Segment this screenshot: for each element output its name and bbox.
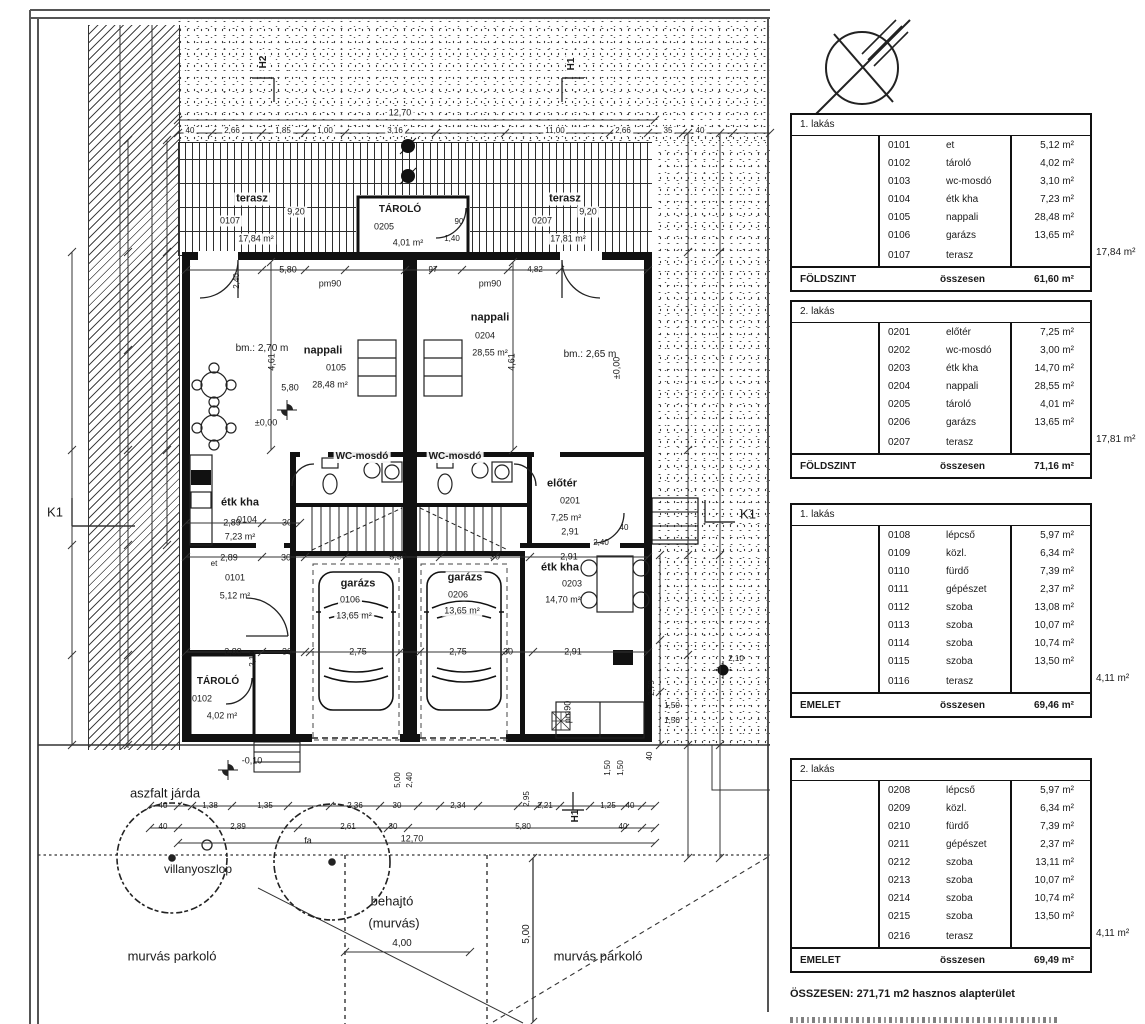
room-name: szoba (946, 656, 1012, 667)
table-row: 0204nappali28,55 m² (792, 377, 1090, 395)
plan-label: 17,81 m² (548, 234, 588, 245)
room-code: 0212 (888, 857, 946, 868)
schedule-rows: 0201előtér7,25 m²0202wc-mosdó3,00 m²0203… (792, 323, 1090, 453)
table-row: 0210fürdő7,39 m² (792, 817, 1090, 835)
plan-label: 2,75 (449, 648, 467, 657)
plan-label: 30 (503, 648, 513, 657)
room-code: 0214 (888, 893, 946, 904)
storage-rooms (190, 197, 698, 772)
room-area: 7,39 m² (1012, 821, 1090, 832)
osszesen-label: összesen (940, 274, 1026, 285)
plan-label: -0,10 (242, 757, 263, 766)
plan-label: fa (304, 837, 312, 846)
north-arrow-icon (816, 20, 910, 114)
room-name: közl. (946, 548, 1012, 559)
table-row: 0103wc-mosdó3,10 m² (792, 172, 1090, 190)
plan-label: 2,89 (223, 519, 241, 528)
schedule-rows: 0208lépcső5,97 m²0209közl.6,34 m²0210für… (792, 781, 1090, 947)
plan-label: bm.: 2,70 m (236, 344, 289, 354)
plan-label: étk kha (541, 563, 579, 574)
plan-label: 3,16 (385, 126, 405, 136)
room-area: 3,10 m² (1012, 176, 1090, 187)
plan-label: terasz (547, 193, 583, 206)
room-name: étk kha (946, 363, 1012, 374)
plan-label: nappali (471, 313, 510, 324)
schedule-table-földszint-2: 2. lakás0201előtér7,25 m²0202wc-mosdó3,0… (790, 300, 1092, 479)
plan-label: étk kha (221, 498, 259, 509)
room-name: nappali (946, 381, 1012, 392)
table-row: 0113szoba10,07 m² (792, 616, 1090, 634)
plan-label: H2 (258, 54, 270, 71)
plan-label: 2,36 (347, 802, 363, 810)
plan-label: 30 (281, 554, 291, 563)
plan-label: 2,91 (561, 528, 579, 537)
osszesen-label: összesen (940, 955, 1026, 966)
plan-label: 1,00 (315, 126, 335, 136)
room-area: 13,11 m² (1012, 857, 1090, 868)
table-row: 0208lépcső5,97 m² (792, 781, 1090, 799)
plan-label: 28,48 m² (312, 381, 348, 390)
plan-label: 9,20 (285, 207, 307, 218)
apartment-label: 2. lakás (792, 760, 1090, 781)
plan-label: 0207 (530, 216, 554, 227)
table-row: 0201előtér7,25 m² (792, 323, 1090, 341)
plan-label: 12,70 (401, 835, 424, 844)
room-name: garázs (946, 417, 1012, 428)
table-row: 0215szoba13,50 m² (792, 907, 1090, 925)
total-row: EMELETösszesen69,49 m² (792, 947, 1090, 971)
room-area: 10,07 m² (1012, 875, 1090, 886)
plan-label: 30 (393, 802, 402, 810)
room-name: terasz (946, 437, 1012, 448)
schedule-table-emelet-2: 2. lakás0208lépcső5,97 m²0209közl.6,34 m… (790, 758, 1092, 973)
terrace-area-outside: 17,81 m² (1096, 434, 1135, 445)
plan-label: 40 (184, 126, 197, 136)
room-code: 0201 (888, 327, 946, 338)
room-name: garázs (946, 230, 1012, 241)
room-code: 0203 (888, 363, 946, 374)
room-code: 0103 (888, 176, 946, 187)
room-code: 0115 (888, 656, 946, 667)
plan-label: 4,61 (268, 353, 277, 371)
table-row: 0213szoba10,07 m² (792, 871, 1090, 889)
level-label: FÖLDSZINT (792, 461, 940, 472)
level-label: EMELET (792, 700, 940, 711)
room-name: tároló (946, 158, 1012, 169)
plan-label: 40 (619, 823, 628, 831)
plan-label: 40 (159, 823, 168, 831)
room-code: 0101 (888, 140, 946, 151)
room-code: 0206 (888, 417, 946, 428)
plan-label: garázs (339, 578, 378, 591)
plan-label: előtér (547, 479, 577, 490)
plan-label: 40 (626, 802, 635, 810)
table-row: 0211gépészet2,37 m² (792, 835, 1090, 853)
total-area: 69,46 m² (1026, 700, 1090, 711)
plan-label: 28,55 m² (472, 349, 508, 358)
room-name: előtér (946, 327, 1012, 338)
plan-label: 4,01 m² (393, 239, 424, 248)
room-area: 7,25 m² (1012, 327, 1090, 338)
room-name: wc-mosdó (946, 176, 1012, 187)
total-area: 61,60 m² (1026, 274, 1090, 285)
room-code: 0208 (888, 785, 946, 796)
plan-label: pm90 (319, 280, 342, 289)
plan-label: 4,00 (392, 939, 411, 949)
plan-label: behajtó (371, 895, 414, 908)
plan-label: 2,89 (224, 648, 242, 657)
plan-label: ±0,00 (255, 419, 277, 428)
plan-label: 2,40 (593, 539, 609, 547)
table-row: 0112szoba13,08 m² (792, 598, 1090, 616)
table-row: 0116terasz (792, 670, 1090, 692)
apartment-label: 2. lakás (792, 302, 1090, 323)
plan-label: H1 (571, 810, 581, 823)
plan-label: 14,70 m² (545, 596, 581, 605)
room-area: 5,97 m² (1012, 530, 1090, 541)
utility-pole-symbol (202, 840, 212, 850)
table-row: 0101et5,12 m² (792, 136, 1090, 154)
table-row: 0205tároló4,01 m² (792, 395, 1090, 413)
total-row: FÖLDSZINTösszesen71,16 m² (792, 453, 1090, 477)
plan-label: 2,40 (233, 273, 241, 289)
total-area-summary: ÖSSZESEN: 271,71 m2 hasznos alapterület (790, 988, 1015, 1000)
room-name: fürdő (946, 821, 1012, 832)
plan-label: 12,70 (387, 108, 414, 119)
plan-label: 97 (429, 266, 438, 274)
plan-label: 9,20 (577, 207, 599, 218)
room-code: 0113 (888, 620, 946, 631)
room-name: szoba (946, 620, 1012, 631)
plan-label: 13,65 m² (334, 611, 374, 622)
plan-label: 5,80 (515, 823, 531, 831)
plan-label: pm90 (479, 280, 502, 289)
table-row: 0114szoba10,74 m² (792, 634, 1090, 652)
level-label: EMELET (792, 955, 940, 966)
plan-label: 2,40 (406, 772, 414, 788)
plan-label: 0201 (560, 497, 580, 506)
room-area: 4,02 m² (1012, 158, 1090, 169)
table-row: 0216terasz (792, 925, 1090, 947)
plan-label: 0205 (374, 223, 394, 232)
terrace-area-outside: 4,11 m² (1096, 928, 1129, 939)
table-row: 0107terasz (792, 244, 1090, 266)
total-area: 71,16 m² (1026, 461, 1090, 472)
room-area: 13,65 m² (1012, 230, 1090, 241)
plan-label: WC-mosdó (427, 451, 484, 463)
plan-label: 1,38 (202, 802, 218, 810)
room-area: 13,50 m² (1012, 911, 1090, 922)
room-name: wc-mosdó (946, 345, 1012, 356)
tree-canopies (117, 803, 390, 920)
plan-label: 30 (282, 648, 292, 657)
plan-label: H1 (566, 56, 578, 73)
room-code: 0102 (888, 158, 946, 169)
table-row: 0209közl.6,34 m² (792, 799, 1090, 817)
plan-label: 0203 (562, 580, 582, 589)
schedule-table-emelet-1: 1. lakás0108lépcső5,97 m²0109közl.6,34 m… (790, 503, 1092, 718)
plan-label: 2,79 (648, 680, 656, 696)
room-name: lépcső (946, 530, 1012, 541)
table-row: 0108lépcső5,97 m² (792, 526, 1090, 544)
room-area: 2,37 m² (1012, 839, 1090, 850)
plan-label: murvás parkoló (554, 950, 643, 963)
room-area: 28,48 m² (1012, 212, 1090, 223)
plan-label: 2,66 (222, 126, 242, 136)
level-label: FÖLDSZINT (792, 274, 940, 285)
room-name: et (946, 140, 1012, 151)
plan-label: villanyoszlop (164, 863, 232, 875)
plan-label: 2,75 (349, 648, 367, 657)
room-name: gépészet (946, 839, 1012, 850)
terrace-area-outside: 17,84 m² (1096, 247, 1135, 258)
schedule-table-földszint-1: 1. lakás0101et5,12 m²0102tároló4,02 m²01… (790, 113, 1092, 292)
plan-label: 1,35 (257, 802, 273, 810)
room-area: 4,01 m² (1012, 399, 1090, 410)
schedule-rows: 0108lépcső5,97 m²0109közl.6,34 m²0110für… (792, 526, 1090, 692)
room-area: 3,00 m² (1012, 345, 1090, 356)
plan-label: 0105 (326, 364, 346, 373)
plan-label: 0204 (475, 332, 495, 341)
room-area: 10,74 m² (1012, 893, 1090, 904)
room-code: 0204 (888, 381, 946, 392)
room-code: 0106 (888, 230, 946, 241)
plan-label: bm.: 2,65 m (564, 350, 617, 360)
plan-label: 35 (662, 126, 675, 136)
column-divider (878, 526, 880, 692)
room-code: 0216 (888, 931, 946, 942)
plan-label: 0107 (218, 216, 242, 227)
room-name: szoba (946, 911, 1012, 922)
plan-label: 1,50 (664, 702, 680, 710)
room-code: 0104 (888, 194, 946, 205)
room-area: 6,34 m² (1012, 803, 1090, 814)
apartment-label: 1. lakás (792, 115, 1090, 136)
table-row: 0214szoba10,74 m² (792, 889, 1090, 907)
column-divider (1010, 323, 1012, 453)
plan-label: 1,50 (617, 760, 625, 776)
room-area: 5,97 m² (1012, 785, 1090, 796)
table-row: 0203étk kha14,70 m² (792, 359, 1090, 377)
room-name: szoba (946, 857, 1012, 868)
plan-label: 4,61 (508, 353, 517, 371)
room-name: étk kha (946, 194, 1012, 205)
plan-label: 5,50 (389, 553, 407, 562)
plan-label: K1 (47, 506, 63, 519)
plan-label: 2,66 (613, 126, 633, 136)
room-area: 7,23 m² (1012, 194, 1090, 205)
room-name: közl. (946, 803, 1012, 814)
room-code: 0205 (888, 399, 946, 410)
total-row: EMELETösszesen69,46 m² (792, 692, 1090, 716)
plan-label: 7,23 m² (225, 533, 256, 542)
room-area: 13,08 m² (1012, 602, 1090, 613)
floor-plan-sheet: terasz01079,2017,84 m²terasz02079,2017,8… (0, 0, 1145, 1024)
room-name: terasz (946, 676, 1012, 687)
column-divider (1010, 781, 1012, 947)
room-code: 0211 (888, 839, 946, 850)
plan-label: 5,00 (394, 772, 402, 788)
plan-label: ±0,00 (613, 357, 622, 379)
plan-label: K1 (740, 508, 756, 521)
room-name: tároló (946, 399, 1012, 410)
plan-label: 5,12 m² (220, 592, 251, 601)
plan-label: 5,80 (279, 266, 297, 275)
plan-label: 90 (455, 218, 464, 226)
total-area: 69,49 m² (1026, 955, 1090, 966)
plan-label: 30 (389, 823, 398, 831)
plan-label: TÁROLÓ (197, 677, 239, 687)
apartment-label: 1. lakás (792, 505, 1090, 526)
room-code: 0107 (888, 250, 946, 261)
table-row: 0106garázs13,65 m² (792, 226, 1090, 244)
plan-label: 2,91 (560, 553, 578, 562)
room-code: 0111 (888, 584, 946, 595)
plan-label: 2,10 (728, 655, 744, 663)
plan-label: 2,89 (220, 554, 238, 563)
plan-label: 2,10 (249, 651, 257, 667)
room-name: terasz (946, 931, 1012, 942)
room-name: lépcső (946, 785, 1012, 796)
room-code: 0109 (888, 548, 946, 559)
osszesen-label: összesen (940, 700, 1026, 711)
plan-label: 2,89 (230, 823, 246, 831)
room-code: 0114 (888, 638, 946, 649)
plan-label: murvás parkoló (128, 950, 217, 963)
table-row: 0212szoba13,11 m² (792, 853, 1090, 871)
total-row: FÖLDSZINTösszesen61,60 m² (792, 266, 1090, 290)
plan-label: 2,61 (340, 823, 356, 831)
room-area: 28,55 m² (1012, 381, 1090, 392)
table-row: 0109közl.6,34 m² (792, 544, 1090, 562)
plan-label: 5,80 (281, 384, 299, 393)
plan-label: 30 (282, 519, 292, 528)
room-area: 13,50 m² (1012, 656, 1090, 667)
room-code: 0108 (888, 530, 946, 541)
room-code: 0105 (888, 212, 946, 223)
room-code: 0202 (888, 345, 946, 356)
osszesen-label: összesen (940, 461, 1026, 472)
room-area: 7,39 m² (1012, 566, 1090, 577)
room-name: szoba (946, 875, 1012, 886)
plan-label: 0206 (446, 590, 470, 601)
plan-label: et (211, 560, 218, 568)
plan-label: 0101 (225, 574, 245, 583)
room-code: 0207 (888, 437, 946, 448)
table-row: 0110fürdő7,39 m² (792, 562, 1090, 580)
plan-label: 40 (646, 752, 654, 761)
column-divider (878, 781, 880, 947)
room-name: szoba (946, 893, 1012, 904)
room-code: 0210 (888, 821, 946, 832)
table-row: 0102tároló4,02 m² (792, 154, 1090, 172)
plan-label: (murvás) (368, 917, 419, 930)
terrace-area-outside: 4,11 m² (1096, 673, 1129, 684)
room-area: 14,70 m² (1012, 363, 1090, 374)
table-row: 0207terasz (792, 431, 1090, 453)
plan-label: 2,91 (564, 648, 582, 657)
plan-label: garázs (446, 572, 485, 585)
room-name: nappali (946, 212, 1012, 223)
column-divider (878, 136, 880, 266)
plan-label: 4,82 (527, 266, 543, 274)
plan-label: 13,65 m² (442, 606, 482, 617)
table-row: 0104étk kha7,23 m² (792, 190, 1090, 208)
schedule-rows: 0101et5,12 m²0102tároló4,02 m²0103wc-mos… (792, 136, 1090, 266)
column-divider (1010, 136, 1012, 266)
plan-label: 1,50 (664, 717, 680, 725)
room-name: terasz (946, 250, 1012, 261)
room-code: 0116 (888, 676, 946, 687)
plan-label: 2,95 (523, 791, 531, 807)
plan-label: nappali (304, 346, 343, 357)
room-code: 0110 (888, 566, 946, 577)
table-row: 0111gépészet2,37 m² (792, 580, 1090, 598)
room-name: gépészet (946, 584, 1012, 595)
plan-label: 40 (159, 802, 168, 810)
room-area: 13,65 m² (1012, 417, 1090, 428)
plan-label: 30 (490, 553, 500, 562)
room-code: 0213 (888, 875, 946, 886)
plan-label: aszfalt járda (130, 787, 200, 800)
car-left (316, 572, 396, 710)
plan-label: TÁROLÓ (379, 205, 421, 215)
room-area: 6,34 m² (1012, 548, 1090, 559)
table-row: 0115szoba13,50 m² (792, 652, 1090, 670)
table-row: 0105nappali28,48 m² (792, 208, 1090, 226)
room-area: 2,37 m² (1012, 584, 1090, 595)
cutoff-text-line (790, 1017, 1058, 1023)
plan-label: 1,25 (600, 802, 616, 810)
room-name: szoba (946, 638, 1012, 649)
room-area: 10,74 m² (1012, 638, 1090, 649)
column-divider (1010, 526, 1012, 692)
plan-label: terasz (234, 193, 270, 206)
site-boundary (30, 10, 770, 1024)
table-row: 0206garázs13,65 m² (792, 413, 1090, 431)
room-code: 0209 (888, 803, 946, 814)
plan-label: 17,84 m² (236, 234, 276, 245)
plan-label: 40 (694, 126, 707, 136)
plan-label: 1,50 (604, 760, 612, 776)
plan-label: 7,25 m² (551, 514, 582, 523)
room-code: 0215 (888, 911, 946, 922)
room-area: 10,07 m² (1012, 620, 1090, 631)
plan-label: 5,00 (522, 924, 532, 943)
plan-label: WC-mosdó (334, 451, 391, 463)
plan-label: 11,00 (543, 126, 566, 136)
column-divider (878, 323, 880, 453)
plan-label: 1,40 (444, 235, 460, 243)
room-name: szoba (946, 602, 1012, 613)
room-name: fürdő (946, 566, 1012, 577)
room-code: 0112 (888, 602, 946, 613)
plan-label: pm90 (564, 701, 573, 724)
plan-label: 2,21 (537, 802, 553, 810)
plan-label: 40 (620, 524, 629, 532)
table-row: 0202wc-mosdó3,00 m² (792, 341, 1090, 359)
plan-label: 1,85 (273, 126, 293, 136)
plan-label: 0106 (338, 595, 362, 606)
plan-label: 2,34 (450, 802, 466, 810)
plan-label: 4,02 m² (207, 712, 238, 721)
room-area: 5,12 m² (1012, 140, 1090, 151)
plan-label: 0102 (192, 695, 212, 704)
